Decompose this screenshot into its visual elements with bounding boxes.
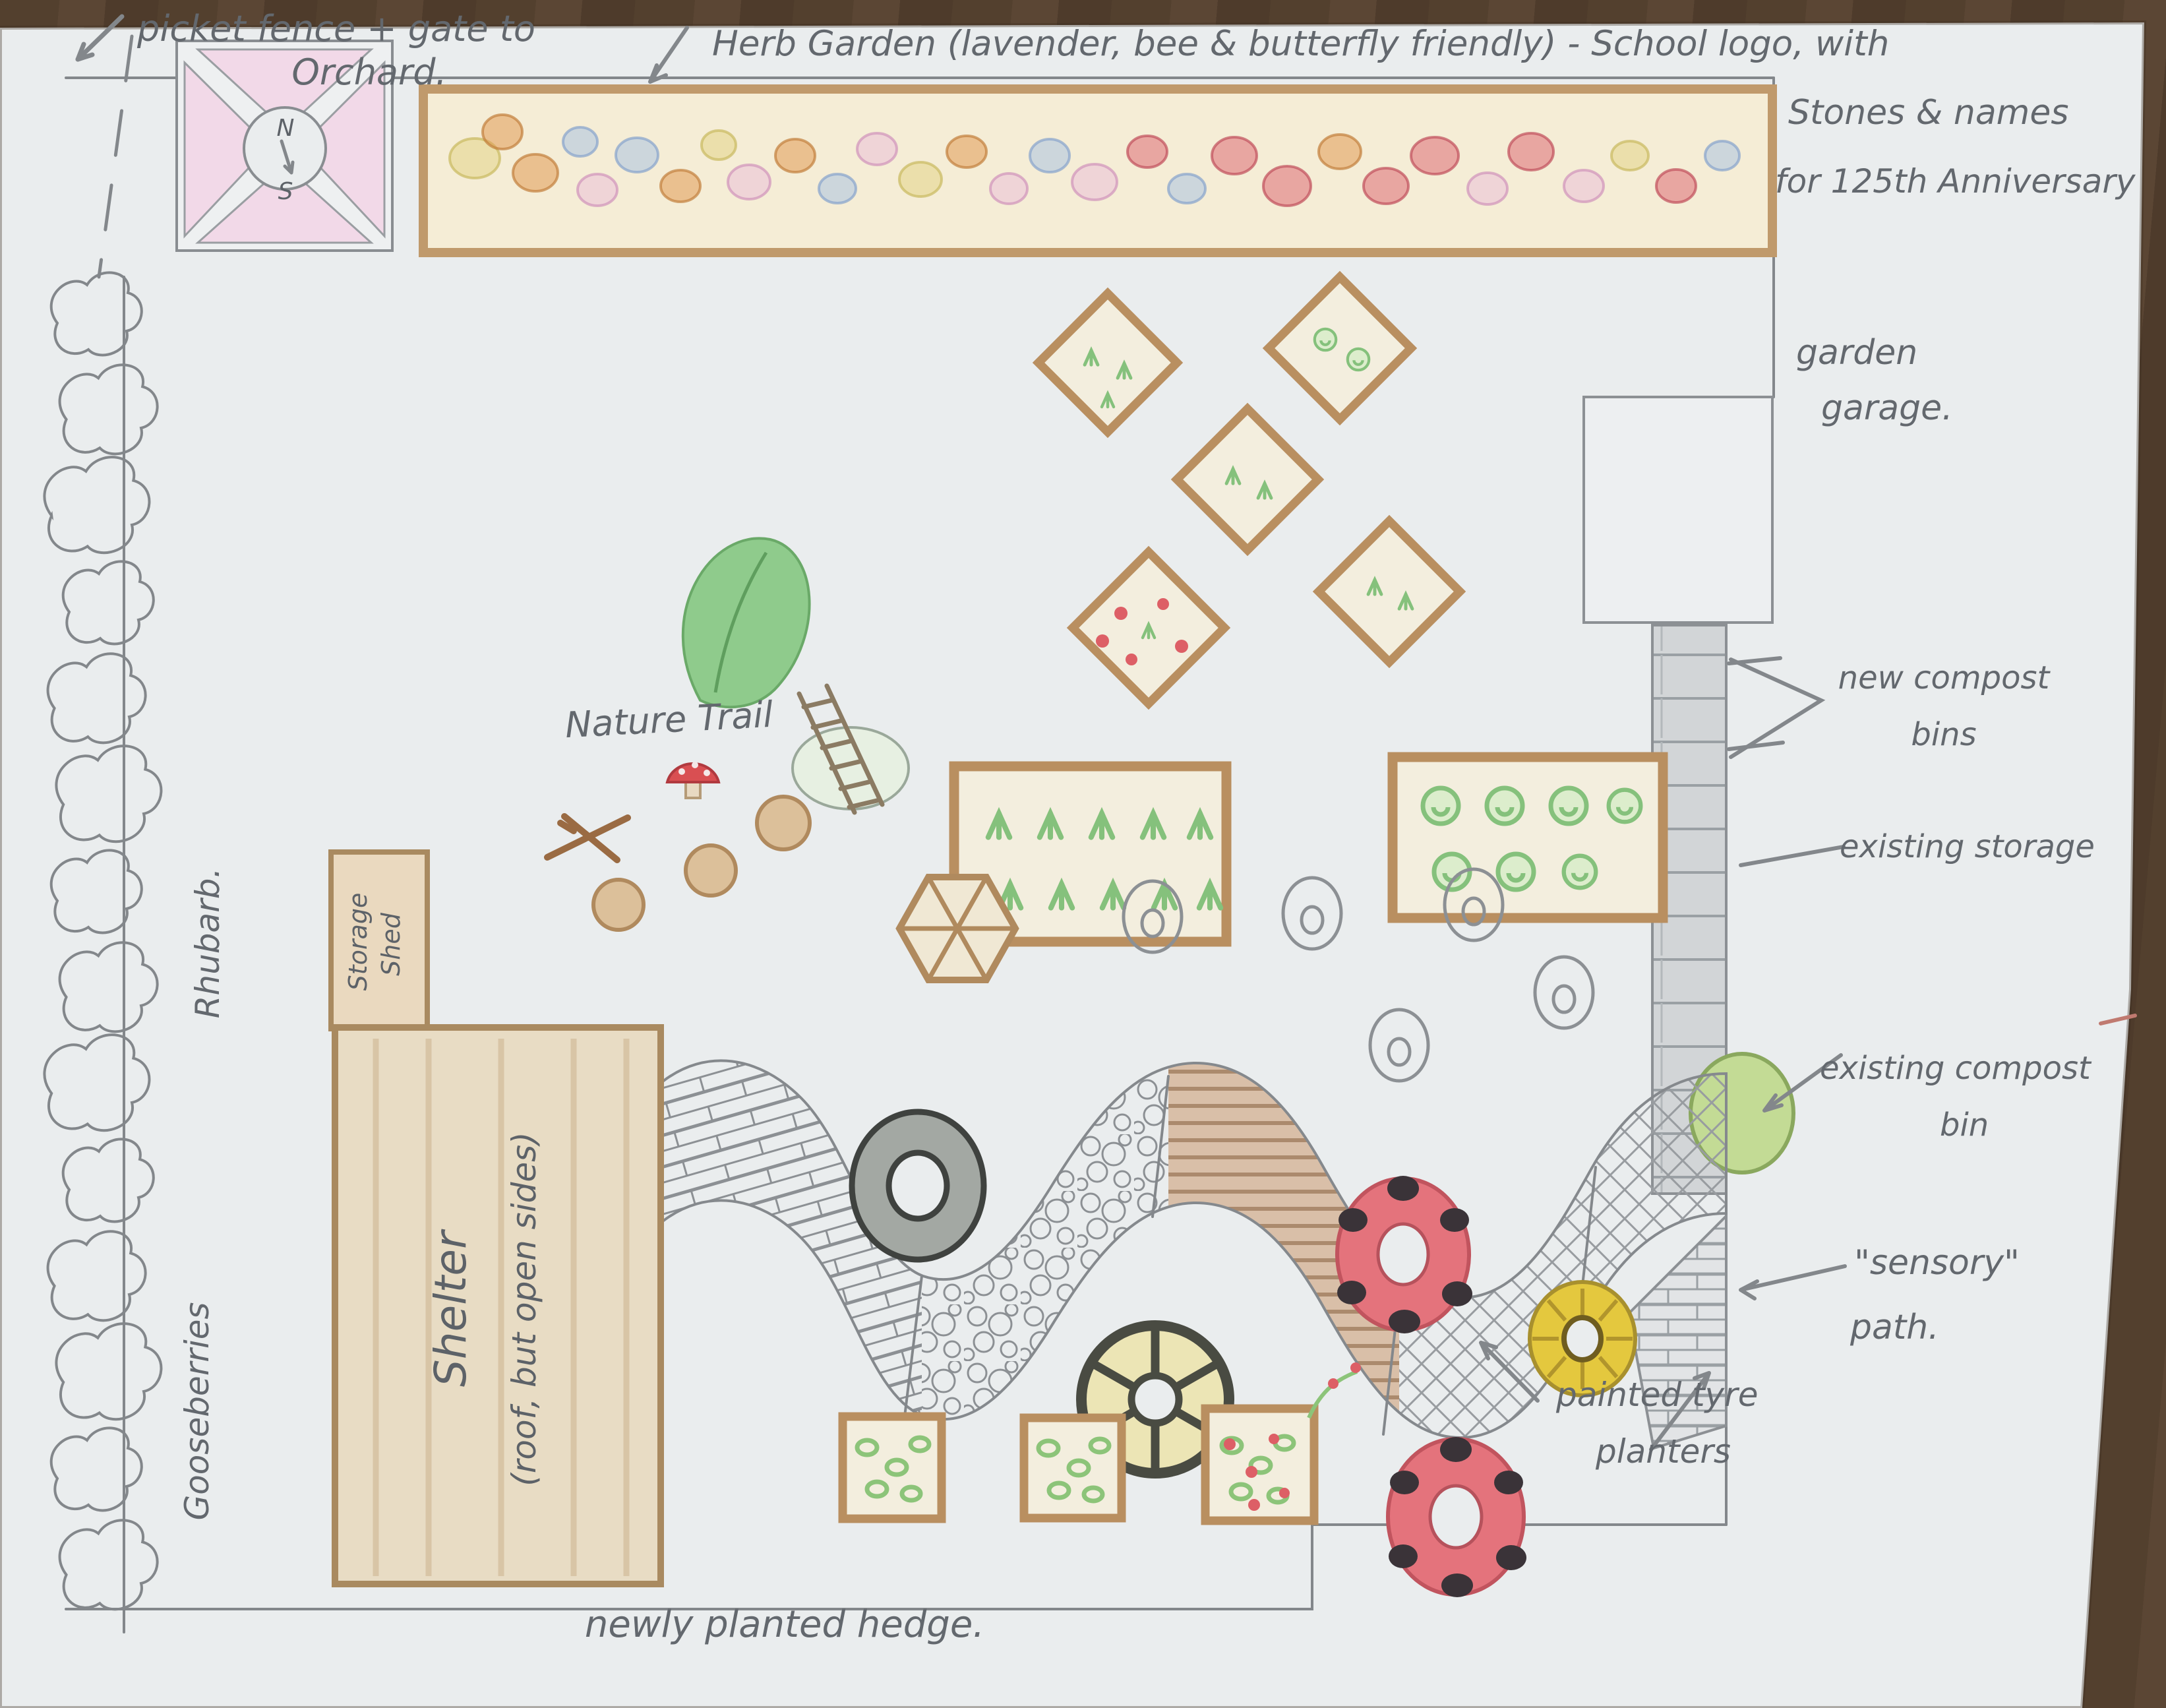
storage-shed-label-2: Shed	[376, 912, 406, 976]
storage-shed: Storage Shed	[331, 852, 427, 1029]
label-new-compost-1: new compost	[1838, 659, 2051, 696]
garden-garage	[1584, 397, 1772, 623]
label-garden-garage-1: garden	[1796, 333, 1917, 373]
herb-garden-strip	[423, 89, 1772, 253]
hexagon-planter	[899, 877, 1015, 980]
shelter-label-2: (roof, but open sides)	[505, 1132, 543, 1486]
label-picket-fence-1: picket fence + gate to	[136, 8, 535, 49]
compass-north: N	[277, 115, 295, 142]
label-sensory-2: path.	[1850, 1308, 1939, 1347]
label-existing-compost-1: existing compost	[1820, 1050, 2092, 1087]
raised-bed-cabbages	[1393, 757, 1663, 918]
label-rhubarb: Rhubarb.	[189, 868, 227, 1019]
label-picket-fence-2: Orchard.	[291, 51, 446, 93]
label-gooseberries: Gooseberries	[178, 1302, 216, 1520]
label-anniversary-1: Stones & names	[1788, 93, 2068, 133]
planter-box	[843, 1417, 942, 1519]
label-sensory-1: "sensory"	[1854, 1243, 2020, 1283]
shelter: Shelter (roof, but open sides)	[335, 1027, 661, 1584]
label-anniversary-2: for 125th Anniversary	[1775, 162, 2136, 200]
label-herb-garden: Herb Garden (lavender, bee & butterfly f…	[712, 24, 1889, 64]
label-hedge: newly planted hedge.	[585, 1603, 984, 1646]
label-new-compost-2: bins	[1911, 716, 1976, 753]
compass-south: S	[278, 178, 293, 205]
garden-plan-drawing: N S	[0, 0, 2166, 1708]
label-garden-garage-2: garage.	[1821, 388, 1953, 428]
label-existing-storage: existing storage	[1840, 828, 2095, 865]
label-existing-compost-2: bin	[1940, 1107, 1989, 1144]
storage-shed-label-1: Storage	[344, 893, 373, 991]
tyre-plain	[852, 1112, 984, 1260]
label-painted-tyre-2: planters	[1595, 1432, 1731, 1471]
photo-of-garden-plan: N S	[0, 0, 2166, 1708]
label-painted-tyre-1: painted tyre	[1555, 1376, 1758, 1414]
planter-box	[1024, 1418, 1122, 1518]
shelter-label-1: Shelter	[425, 1229, 476, 1387]
